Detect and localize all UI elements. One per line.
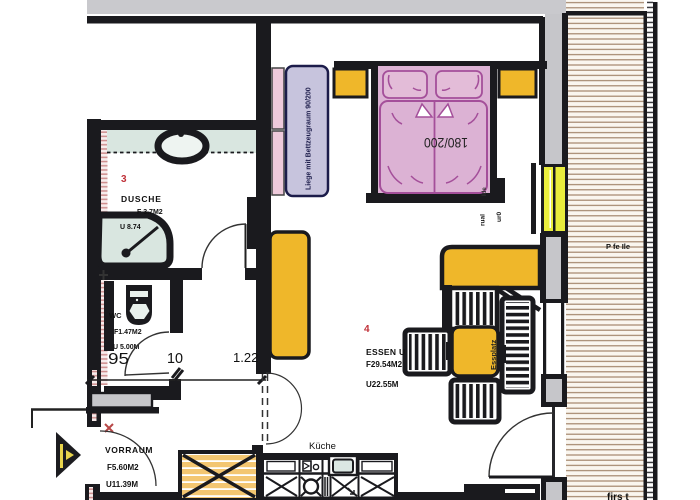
svg-text:firs t: firs t [607, 492, 629, 500]
svg-text:VORRAUM: VORRAUM [105, 445, 153, 455]
svg-text:DUSCHE: DUSCHE [121, 194, 162, 204]
svg-text:U 8.74: U 8.74 [120, 224, 141, 231]
svg-text:3: 3 [121, 174, 127, 185]
svg-text:F5.60M2: F5.60M2 [107, 463, 139, 472]
svg-text:F29.54M2: F29.54M2 [366, 360, 403, 369]
svg-text:ESSEN U: ESSEN U [366, 347, 405, 357]
svg-text:U11.39M: U11.39M [106, 480, 138, 489]
svg-text:95: 95 [108, 351, 129, 368]
svg-text:Ide: Ide [482, 187, 488, 196]
svg-text:ur0: ur0 [496, 212, 503, 223]
svg-text:U22.55M: U22.55M [366, 380, 399, 389]
svg-text:Essplatz: Essplatz [489, 339, 498, 370]
svg-text:Liege mit Bettzeugraum 90/200: Liege mit Bettzeugraum 90/200 [306, 87, 313, 190]
svg-text:F 3.7M2: F 3.7M2 [137, 209, 163, 216]
svg-text:F1.47M2: F1.47M2 [114, 329, 142, 336]
svg-text:Küche: Küche [309, 441, 336, 452]
svg-text:rual: rual [480, 214, 487, 226]
svg-text:1.22: 1.22 [233, 350, 258, 365]
svg-text:P fe Ile: P fe Ile [606, 242, 630, 251]
svg-text:4: 4 [364, 324, 370, 335]
svg-text:WC: WC [109, 311, 122, 320]
svg-text:10: 10 [167, 350, 183, 367]
svg-text:180/200: 180/200 [424, 135, 468, 151]
